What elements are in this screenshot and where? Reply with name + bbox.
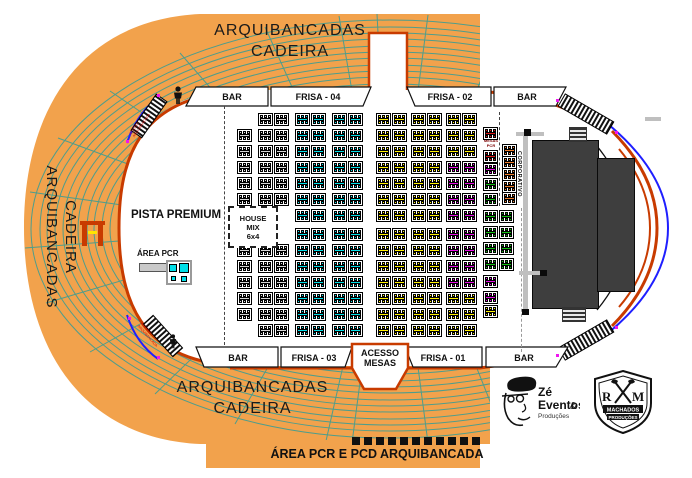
mesa-table[interactable] — [237, 177, 252, 190]
mesa-table[interactable] — [376, 276, 391, 289]
mesa-table[interactable] — [348, 129, 363, 142]
mesa-table[interactable] — [332, 260, 347, 273]
mesa-table[interactable] — [274, 292, 289, 305]
mesa-table[interactable] — [274, 129, 289, 142]
mesa-table[interactable] — [258, 260, 273, 273]
mesa-table[interactable] — [311, 260, 326, 273]
ramp-dot-2 — [126, 140, 129, 143]
mesa-table[interactable] — [392, 260, 407, 273]
mesa-table[interactable] — [295, 260, 310, 273]
mesa-table[interactable] — [295, 161, 310, 174]
mesa-table[interactable] — [376, 228, 391, 241]
mesa-table[interactable] — [392, 177, 407, 190]
mesa-table[interactable] — [376, 292, 391, 305]
banner-label: ÁREA PCR E PCD ARQUIBANCADA — [206, 440, 514, 468]
mesa-table[interactable] — [274, 308, 289, 321]
mesa-table[interactable] — [295, 292, 310, 305]
mesa-table[interactable] — [483, 275, 498, 288]
mesa-table[interactable] — [411, 260, 426, 273]
mesa-table[interactable] — [376, 308, 391, 321]
mesa-table[interactable] — [311, 324, 326, 337]
mesa-table[interactable] — [332, 129, 347, 142]
mesa-table[interactable] — [483, 127, 498, 140]
mesa-table[interactable] — [483, 305, 498, 318]
bar-bottom-right-label: BAR — [488, 349, 560, 367]
mesa-table[interactable] — [483, 163, 498, 176]
mesa-table[interactable] — [348, 308, 363, 321]
mesa-table[interactable] — [427, 228, 442, 241]
mesa-table[interactable] — [332, 177, 347, 190]
mesa-table[interactable] — [376, 145, 391, 158]
mesa-table[interactable] — [348, 228, 363, 241]
mesa-table[interactable] — [462, 308, 477, 321]
svg-text:Zé: Zé — [538, 385, 552, 399]
mesa-table[interactable] — [295, 276, 310, 289]
mesa-table[interactable] — [392, 244, 407, 257]
ramp-dot-7 — [556, 354, 559, 357]
mesa-table[interactable] — [348, 209, 363, 222]
mesa-table[interactable] — [392, 193, 407, 206]
mesa-table[interactable] — [258, 324, 273, 337]
mesa-table[interactable] — [446, 276, 461, 289]
mesa-table[interactable] — [499, 258, 514, 271]
mesa-table[interactable] — [462, 129, 477, 142]
mesa-table[interactable] — [295, 129, 310, 142]
mesa-table[interactable] — [411, 129, 426, 142]
mesa-table[interactable] — [446, 324, 461, 337]
mesa-table[interactable] — [462, 292, 477, 305]
mesa-table[interactable] — [332, 324, 347, 337]
mesa-table[interactable] — [446, 244, 461, 257]
mesa-table[interactable] — [376, 260, 391, 273]
mesa-table[interactable] — [427, 308, 442, 321]
svg-text:R: R — [602, 389, 612, 404]
mesa-table[interactable] — [411, 161, 426, 174]
mesa-table[interactable] — [295, 113, 310, 126]
mesa-table[interactable] — [376, 193, 391, 206]
mesa-table[interactable] — [392, 308, 407, 321]
mesa-table[interactable] — [295, 244, 310, 257]
mesa-table[interactable] — [411, 209, 426, 222]
bar-top-left-label: BAR — [196, 88, 268, 106]
mesa-table[interactable] — [311, 193, 326, 206]
mesa-table[interactable] — [411, 244, 426, 257]
svg-text:PRODUÇÕES: PRODUÇÕES — [608, 414, 637, 420]
mesa-table[interactable] — [376, 161, 391, 174]
mesa-table[interactable] — [411, 177, 426, 190]
mesa-table[interactable] — [446, 145, 461, 158]
mesa-table[interactable] — [274, 145, 289, 158]
bar-top-right-label: BAR — [494, 88, 560, 106]
mesa-table[interactable] — [332, 113, 347, 126]
acesso-mesas-label: ACESSOMESAS — [352, 348, 408, 368]
mesa-table[interactable] — [258, 113, 273, 126]
mesa-table[interactable] — [295, 193, 310, 206]
mesa-table[interactable] — [411, 292, 426, 305]
mesa-table[interactable] — [483, 258, 498, 271]
mesa-table[interactable] — [332, 308, 347, 321]
ramp-dot-4 — [157, 356, 160, 359]
mesa-table[interactable] — [311, 209, 326, 222]
mesa-table[interactable] — [332, 276, 347, 289]
mesa-table[interactable] — [258, 145, 273, 158]
mesa-table[interactable] — [295, 177, 310, 190]
ramp-dot-5 — [556, 99, 559, 102]
mesa-table[interactable] — [237, 193, 252, 206]
mesa-table[interactable] — [427, 244, 442, 257]
mesa-table[interactable] — [258, 129, 273, 142]
ramp-dot-1 — [157, 94, 160, 97]
mesa-table[interactable] — [311, 113, 326, 126]
mesa-table[interactable] — [462, 193, 477, 206]
mesa-table[interactable] — [295, 228, 310, 241]
mesa-table[interactable] — [376, 209, 391, 222]
mesas-layer — [0, 0, 692, 478]
svg-text:MACHADOS: MACHADOS — [607, 408, 640, 414]
mesa-table[interactable] — [392, 228, 407, 241]
ramp-dot-8 — [615, 326, 618, 329]
mesa-table[interactable] — [483, 291, 498, 304]
mesa-table[interactable] — [392, 292, 407, 305]
mesa-table[interactable] — [348, 260, 363, 273]
mesa-table[interactable] — [311, 145, 326, 158]
mesa-table[interactable] — [258, 161, 273, 174]
mesa-table[interactable] — [295, 145, 310, 158]
mesa-table[interactable] — [332, 145, 347, 158]
mesa-table[interactable] — [446, 161, 461, 174]
mesa-table[interactable] — [348, 292, 363, 305]
mesa-table[interactable] — [502, 192, 517, 205]
beret-icon — [507, 377, 536, 392]
mesa-table[interactable] — [348, 276, 363, 289]
mesa-table[interactable] — [462, 228, 477, 241]
mesa-table[interactable] — [332, 193, 347, 206]
mesa-table[interactable] — [392, 209, 407, 222]
mesa-table[interactable] — [311, 244, 326, 257]
mesa-table[interactable] — [274, 177, 289, 190]
mesa-table[interactable] — [427, 129, 442, 142]
mesa-table[interactable] — [274, 193, 289, 206]
mesa-table[interactable] — [376, 113, 391, 126]
mesa-table[interactable] — [237, 260, 252, 273]
mesa-table[interactable] — [446, 292, 461, 305]
mesa-table[interactable] — [258, 177, 273, 190]
mesa-table[interactable] — [462, 177, 477, 190]
mesa-table[interactable] — [295, 209, 310, 222]
mesa-table[interactable] — [462, 244, 477, 257]
mesa-table[interactable] — [311, 177, 326, 190]
mesa-table[interactable] — [392, 129, 407, 142]
mesa-table[interactable] — [462, 145, 477, 158]
mesa-table[interactable] — [332, 209, 347, 222]
mesa-table[interactable] — [462, 113, 477, 126]
mesa-table[interactable] — [237, 276, 252, 289]
mesa-table[interactable] — [376, 177, 391, 190]
ramp-dot-6 — [615, 131, 618, 134]
mesa-table[interactable] — [499, 242, 514, 255]
mesa-table[interactable] — [392, 113, 407, 126]
mesa-table[interactable] — [446, 193, 461, 206]
mesa-table[interactable] — [332, 161, 347, 174]
mesa-table[interactable] — [392, 324, 407, 337]
mesa-table[interactable] — [376, 129, 391, 142]
mesa-table[interactable] — [311, 276, 326, 289]
mesa-table[interactable] — [427, 209, 442, 222]
mesa-table[interactable] — [499, 210, 514, 223]
mesa-table[interactable] — [348, 177, 363, 190]
mesa-table[interactable] — [427, 276, 442, 289]
svg-text:Produções: Produções — [538, 413, 570, 420]
bar-bottom-left-label: BAR — [200, 349, 276, 367]
mesa-table[interactable] — [462, 260, 477, 273]
mesa-table[interactable] — [427, 324, 442, 337]
mesa-table[interactable] — [311, 228, 326, 241]
mesa-table[interactable] — [446, 129, 461, 142]
mesa-table[interactable] — [258, 193, 273, 206]
mesa-table[interactable] — [427, 292, 442, 305]
mesa-table[interactable] — [332, 244, 347, 257]
mesa-table[interactable] — [348, 145, 363, 158]
mesa-table[interactable] — [446, 260, 461, 273]
frisa-01-label: FRISA - 01 — [407, 349, 479, 367]
mesa-table[interactable] — [427, 145, 442, 158]
venue-seating-map: ARQUIBANCADASCADEIRA CADEIRAARQUIBANCADA… — [0, 0, 692, 478]
mesa-table[interactable] — [462, 324, 477, 337]
mesa-table[interactable] — [237, 129, 252, 142]
mesa-table[interactable] — [348, 113, 363, 126]
mesa-table[interactable] — [274, 113, 289, 126]
mesa-table[interactable] — [311, 308, 326, 321]
mesa-table[interactable] — [348, 244, 363, 257]
frisa-03-label: FRISA - 03 — [281, 349, 347, 367]
mesa-table[interactable] — [446, 209, 461, 222]
mesa-table[interactable] — [411, 324, 426, 337]
mesa-table[interactable] — [237, 292, 252, 305]
mesa-table[interactable] — [411, 145, 426, 158]
frisa-04-label: FRISA - 04 — [271, 88, 365, 106]
mesa-table[interactable] — [392, 276, 407, 289]
mesa-table[interactable] — [446, 308, 461, 321]
mesa-table[interactable] — [483, 193, 498, 206]
mesa-table[interactable] — [483, 226, 498, 239]
svg-text:&: & — [570, 401, 577, 412]
mesa-table[interactable] — [427, 177, 442, 190]
mesa-table[interactable] — [483, 242, 498, 255]
mesa-table[interactable] — [483, 150, 498, 163]
mesa-table[interactable] — [427, 193, 442, 206]
frisa-02-label: FRISA - 02 — [410, 88, 490, 106]
ze-eventos-logo: Zé Eventos & Produções — [494, 374, 580, 432]
mesa-table[interactable] — [274, 324, 289, 337]
mesa-table[interactable] — [499, 226, 514, 239]
mesa-table[interactable] — [332, 292, 347, 305]
mesa-table[interactable] — [483, 178, 498, 191]
house-mix-box[interactable]: HOUSE MIX 6x4 — [228, 206, 278, 248]
mesa-table[interactable] — [348, 324, 363, 337]
mesa-table[interactable] — [274, 260, 289, 273]
mesa-table[interactable] — [427, 260, 442, 273]
mesa-table[interactable] — [237, 308, 252, 321]
mesa-table[interactable] — [295, 308, 310, 321]
mesa-table[interactable] — [483, 210, 498, 223]
mesa-table[interactable] — [258, 308, 273, 321]
mesa-table[interactable] — [237, 161, 252, 174]
mesa-table[interactable] — [332, 228, 347, 241]
mesa-table[interactable] — [295, 324, 310, 337]
mesa-table[interactable] — [446, 228, 461, 241]
mesa-table[interactable] — [348, 161, 363, 174]
mesa-table[interactable] — [462, 209, 477, 222]
mesa-table[interactable] — [376, 244, 391, 257]
ramp-dot-3 — [128, 317, 131, 320]
mesa-table[interactable] — [446, 113, 461, 126]
mesa-table[interactable] — [274, 161, 289, 174]
mesa-table[interactable] — [462, 161, 477, 174]
mesa-table[interactable] — [446, 177, 461, 190]
mesa-table[interactable] — [376, 324, 391, 337]
mesa-table[interactable] — [237, 145, 252, 158]
mesa-table[interactable] — [258, 276, 273, 289]
mesa-table[interactable] — [427, 113, 442, 126]
mesa-table[interactable] — [274, 276, 289, 289]
mesa-table[interactable] — [311, 129, 326, 142]
mesa-table[interactable] — [411, 193, 426, 206]
mesa-table[interactable] — [311, 292, 326, 305]
mesa-table[interactable] — [462, 276, 477, 289]
svg-text:M: M — [632, 389, 644, 404]
mesa-table[interactable] — [411, 276, 426, 289]
mesa-table[interactable] — [411, 308, 426, 321]
mesa-table[interactable] — [411, 113, 426, 126]
mesa-table[interactable] — [427, 161, 442, 174]
mesa-table[interactable] — [258, 292, 273, 305]
mesa-table[interactable] — [392, 145, 407, 158]
mesa-table[interactable] — [392, 161, 407, 174]
mesa-table[interactable] — [348, 193, 363, 206]
mesa-table[interactable] — [311, 161, 326, 174]
mesa-table[interactable] — [411, 228, 426, 241]
rm-machados-logo: R M MACHADOS PRODUÇÕES — [592, 370, 654, 434]
